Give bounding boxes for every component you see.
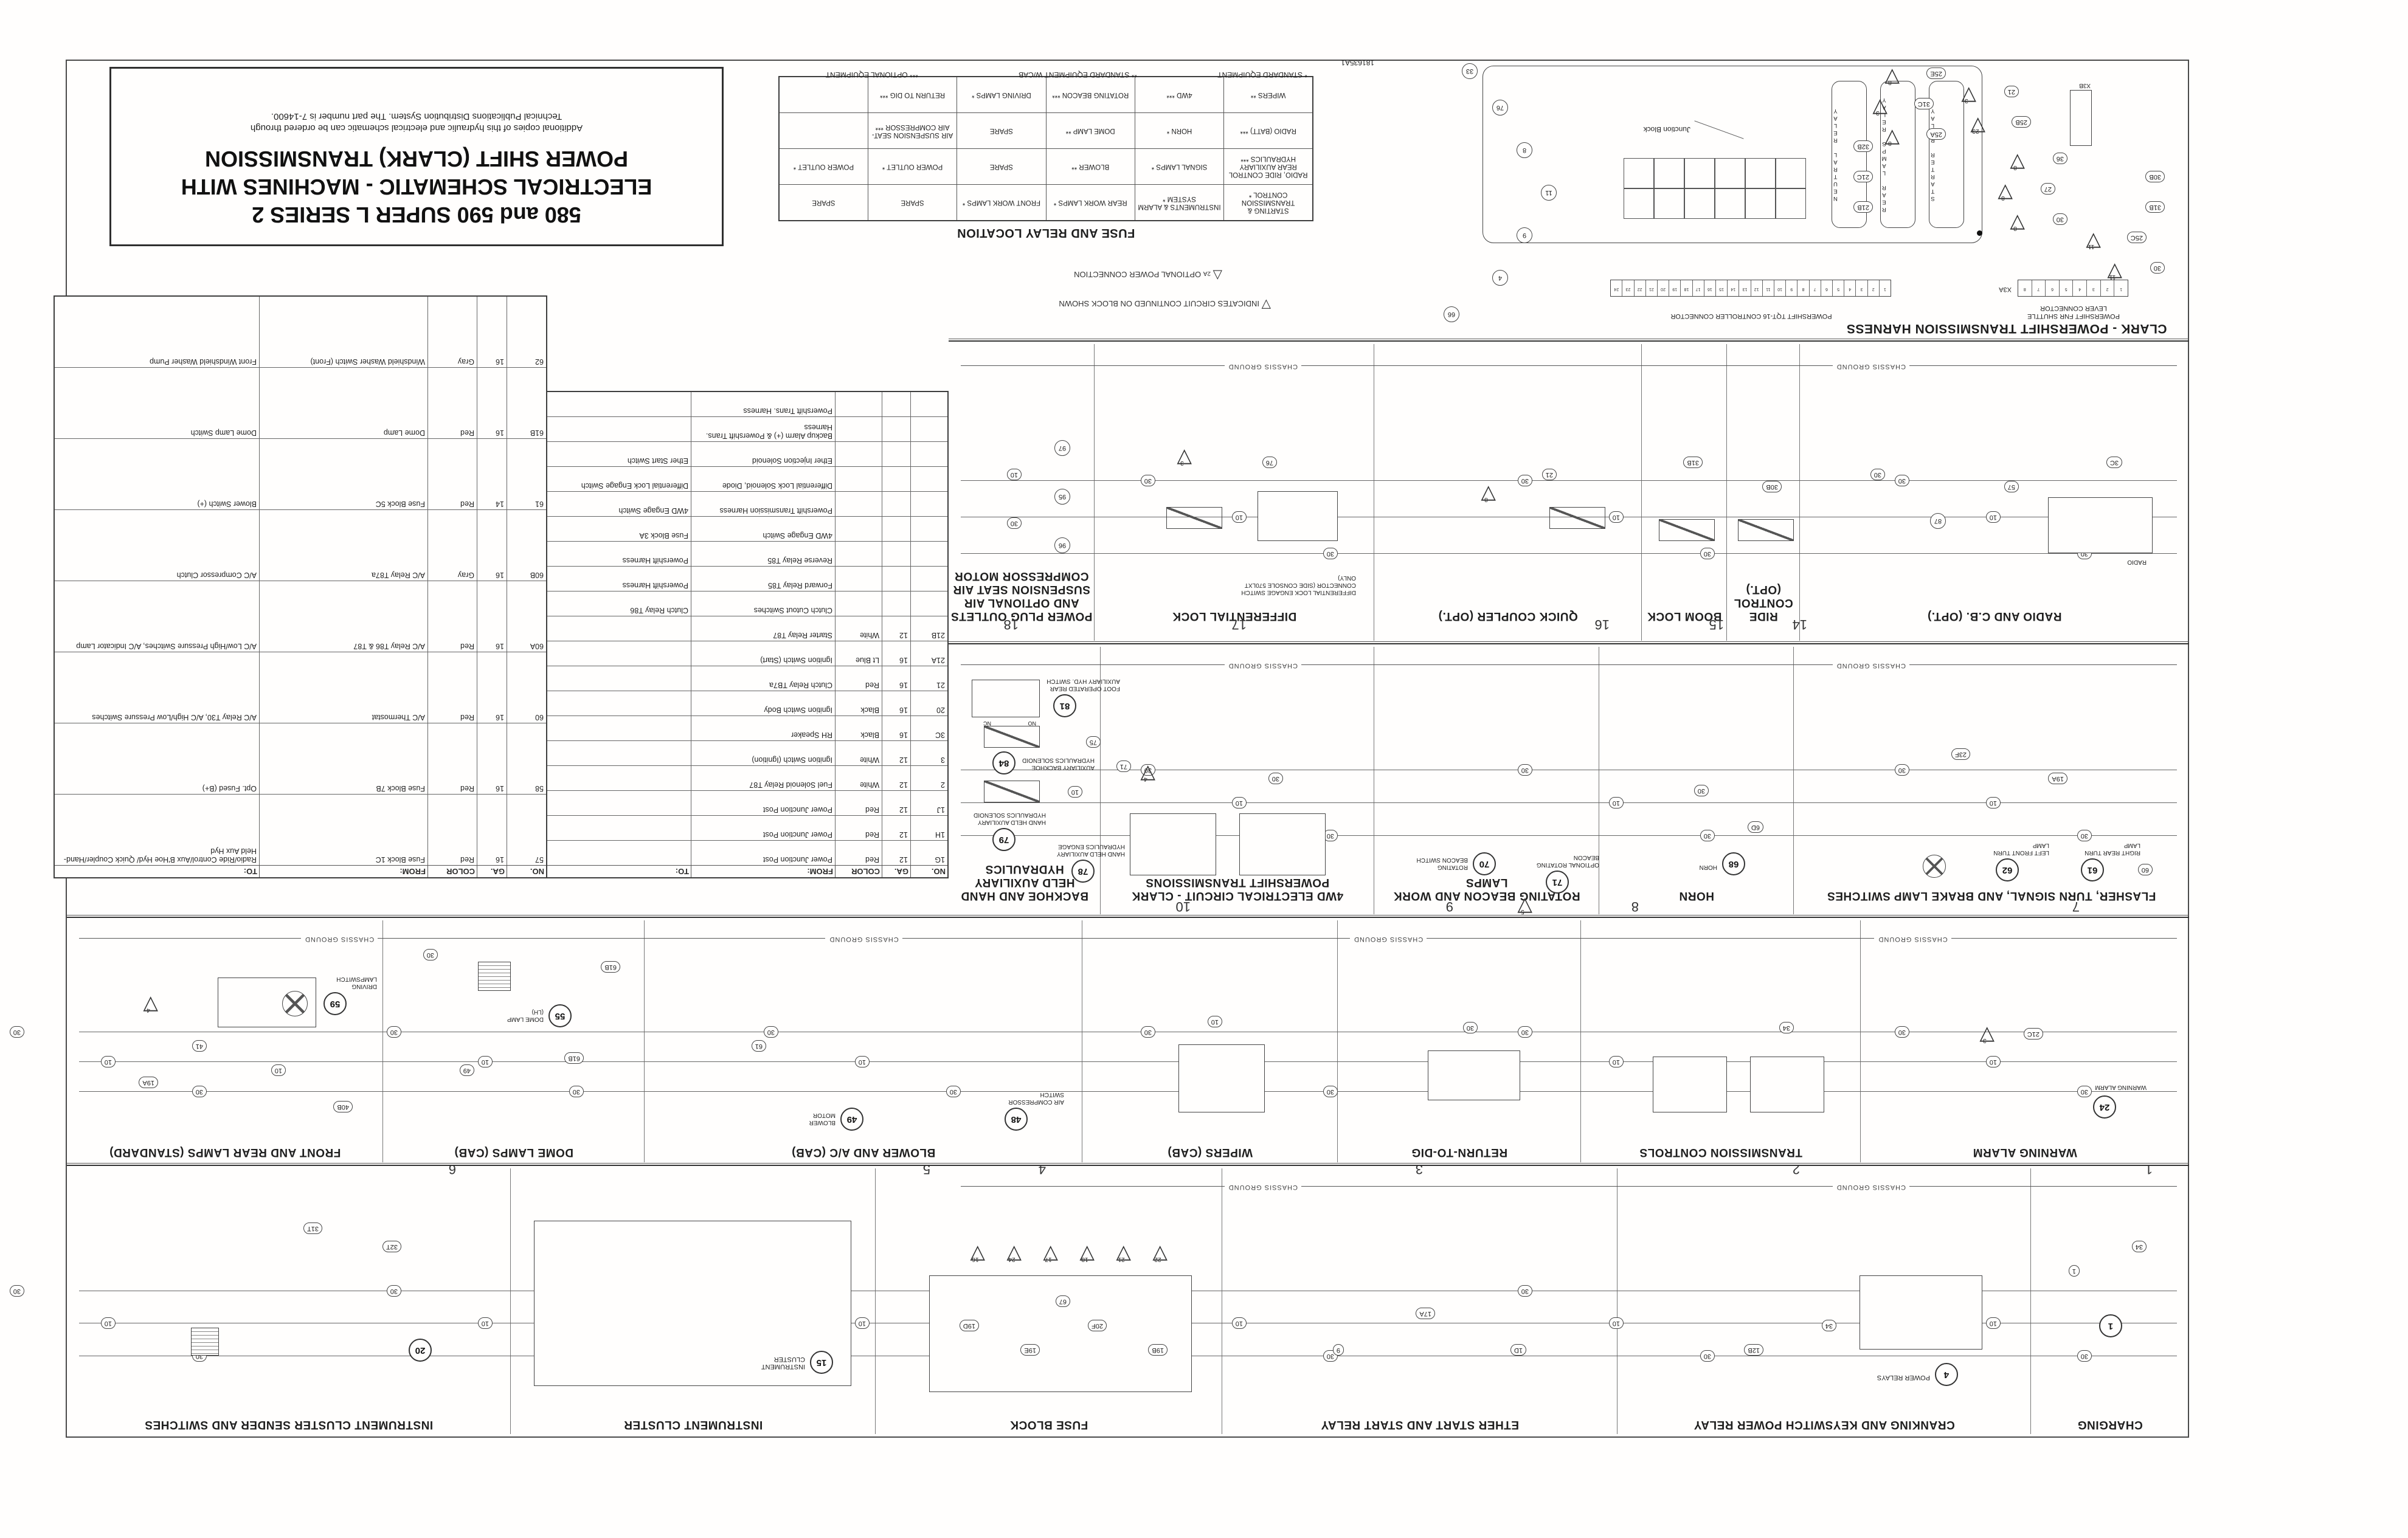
solenoid-coil <box>1738 519 1794 541</box>
wire-number: 30B <box>2145 171 2165 182</box>
schematic-sheet-rotated-180: CLARK - POWERSHIFT TRANSMISSION HARNESS … <box>0 0 2408 1538</box>
ground-triangle: ▽3 <box>1171 447 1192 468</box>
wire-number: 21B <box>1853 201 1873 213</box>
callout-number: 95 <box>1054 489 1070 505</box>
component-box <box>1750 1057 1824 1112</box>
ground-triangle-number: 8 <box>1476 496 1496 503</box>
wire-number: 30 <box>423 949 438 960</box>
component-label: FOOT OPERATED REAR AUXILIARY HYD. SWITCH <box>1041 677 1120 692</box>
ground-triangle-number: 18 <box>1075 1256 1095 1263</box>
component-box <box>972 680 1040 717</box>
component-box <box>1178 1044 1265 1112</box>
wire-number: 75 <box>1086 736 1101 748</box>
component-box <box>1653 1057 1727 1112</box>
schematic-elements: 13414POWER RELAYS3412B1D17A919B20F19E19D… <box>0 0 2408 1538</box>
ground-triangle-number: 3 <box>1975 1037 1995 1044</box>
ground-triangle-number: 22 <box>1148 1256 1168 1263</box>
component-box <box>1860 1275 1982 1350</box>
callout-number: 96 <box>1054 537 1070 553</box>
component-box <box>2048 497 2153 553</box>
wire-number: 34 <box>1779 1022 1794 1033</box>
wire-number: 10 <box>271 1064 286 1076</box>
junction-dot <box>1977 230 1982 236</box>
component-label: LEFT FRONT TURN LAMP <box>1982 841 2049 856</box>
callout-number: 66 <box>1444 306 1459 322</box>
scanned-schematic-page: CLARK - POWERSHIFT TRANSMISSION HARNESS … <box>0 0 2408 1538</box>
wire-number: 30 <box>1870 469 1885 480</box>
component-number: 24 <box>2093 1095 2116 1119</box>
lamp-symbol <box>282 991 308 1016</box>
ground-triangle: ▽4 <box>137 995 158 1015</box>
component-box <box>1130 813 1216 875</box>
wire-number: 67 <box>1056 1295 1070 1307</box>
wire-number: 19B <box>1148 1344 1168 1356</box>
component-number: 79 <box>992 828 1015 851</box>
lamp-symbol <box>1923 855 1946 878</box>
ground-triangle: ▽8 <box>1992 182 2013 203</box>
component-number: 71 <box>1546 871 1569 894</box>
wire-number: 32B <box>1853 140 1873 152</box>
component-number: 55 <box>548 1004 572 1027</box>
solenoid-coil <box>984 726 1040 748</box>
solenoid-coil <box>1549 507 1605 529</box>
component-label: HAND HELD AUXILIARY HYDRAULICS SOLENOID <box>973 811 1046 826</box>
component-label: HORN <box>1693 863 1717 871</box>
ground-triangle-number: 21 <box>1112 1256 1131 1263</box>
wire-number: 41 <box>192 1040 207 1052</box>
component-label: AIR COMPRESSOR SWITCH <box>991 1091 1064 1105</box>
callout-number: 8 <box>1517 142 1532 158</box>
wire-number: 1 <box>2069 1265 2080 1277</box>
ground-triangle-number: 3 <box>1868 109 1887 116</box>
wire-number: 36 <box>2053 153 2067 164</box>
wire-number: 10 <box>1208 1016 1222 1027</box>
wire-number: 71 <box>1116 760 1131 772</box>
component-number: 15 <box>810 1351 833 1374</box>
wire-number: 21C <box>2024 1028 2043 1040</box>
ground-triangle: ▽16 <box>964 1244 985 1264</box>
wire-number: 17A <box>1416 1308 1435 1319</box>
wire-number: 30 <box>2150 262 2165 274</box>
component-box <box>1239 813 1326 875</box>
wire-number: 27 <box>2041 183 2055 195</box>
wire-number: 34 <box>2132 1241 2147 1252</box>
component-label: OPTIONAL ROTATING BEACON <box>1532 853 1599 868</box>
solenoid-coil <box>1659 519 1715 541</box>
ground-triangle: ▽18 <box>1074 1244 1095 1264</box>
ground-triangle-number: 16 <box>966 1256 985 1263</box>
lamp-hatched-symbol <box>478 962 511 991</box>
ground-triangle: ▽23 <box>1965 116 1985 136</box>
component-number: 49 <box>840 1108 863 1131</box>
ground-triangle-number: 4 <box>139 1007 158 1013</box>
component-label: WARNING ALARM <box>2092 1083 2147 1091</box>
component-number: 61 <box>2081 858 2104 881</box>
ground-triangle-number: 5 <box>1513 908 1532 915</box>
wire-number: 34 <box>1822 1320 1836 1331</box>
wire-number: 25C <box>2127 232 2147 243</box>
component-label: INSTRUMENT CLUSTER <box>738 1356 805 1370</box>
callout-number: 76 <box>1492 100 1508 116</box>
wire-number: 9 <box>1333 1344 1344 1356</box>
ground-triangle-number: 23 <box>1966 128 1985 134</box>
component-number: 59 <box>323 992 347 1015</box>
callout-number: 4 <box>1492 270 1508 286</box>
component-number: 62 <box>1996 858 2019 881</box>
wire-number: 10 <box>1068 786 1082 798</box>
component-label: RIGHT REAR TURN LAMP <box>2074 841 2140 856</box>
callout-number: 97 <box>1054 440 1070 456</box>
wire-number: 30 <box>1268 773 1283 784</box>
component-label: BLOWER MOTOR <box>787 1111 836 1126</box>
ground-triangle: ▽8 <box>2004 152 2025 173</box>
wire-number: 57 <box>2004 481 2019 492</box>
component-box <box>1258 491 1338 541</box>
ground-triangle: ▽5 <box>1512 896 1532 917</box>
ground-triangle-number: 24 <box>1002 1256 1022 1263</box>
component-box <box>929 1275 1192 1392</box>
ground-triangle: ▽8 <box>1475 484 1496 505</box>
component-number: 78 <box>1071 860 1095 883</box>
wire-number: 76 <box>1262 457 1277 468</box>
wire-number: 31C <box>1914 98 1934 109</box>
wire-number: 40B <box>333 1101 353 1112</box>
callout-number: 11 <box>1541 185 1557 201</box>
ground-triangle: ▽24 <box>1001 1244 1022 1264</box>
wire-number: 12B <box>1744 1344 1763 1356</box>
component-box <box>1428 1050 1520 1100</box>
component-label: AUXILIARY BACKHOE HYDRAULICS SOLENOID <box>1022 756 1095 771</box>
wire-number: 19D <box>960 1320 979 1331</box>
component-number: 20 <box>409 1339 432 1362</box>
wire-number: 19E <box>1020 1344 1040 1356</box>
connector-tag: X3B <box>2066 81 2091 89</box>
wire-number: 3C <box>2106 457 2122 468</box>
wire-number: 20F <box>1088 1320 1107 1331</box>
callout-number: 9 <box>1517 227 1532 243</box>
wire-number: 25A <box>1926 128 1946 140</box>
component-label: HAND HELD AUXILIARY HYDRAULICS ENGAGE <box>1052 843 1125 857</box>
wire-number: 19A <box>139 1077 158 1088</box>
wire-number: 30 <box>1007 517 1022 529</box>
component-number: 70 <box>1473 852 1496 875</box>
ground-triangle-number: 8 <box>2005 164 2025 171</box>
callout-number: 33 <box>1462 63 1478 79</box>
component-label: RADIO <box>2055 558 2147 565</box>
ground-triangle: ▽17 <box>1037 1244 1058 1264</box>
ground-triangle: ▽8 <box>1879 67 1900 88</box>
ground-triangle: ▽3 <box>1867 97 1887 118</box>
wire-number: 19A <box>2048 773 2067 784</box>
ground-triangle: ▽8 <box>1879 128 1900 148</box>
ground-triangle: ▽21 <box>1110 1244 1131 1264</box>
wire-number: 10 <box>1007 469 1022 480</box>
ground-triangle: ▽8 <box>2004 213 2025 233</box>
harness-connector <box>2070 90 2092 146</box>
callout-number: 87 <box>1930 513 1946 529</box>
wire-number: 31T <box>303 1222 322 1234</box>
ground-triangle: ▽22 <box>1147 1244 1168 1264</box>
component-label: DIFFERENTIAL LOCK ENGAGE SWITCH CONNECTO… <box>1234 574 1356 596</box>
ground-triangle: ▽3 <box>1974 1025 1995 1046</box>
ground-triangle-number: 4 <box>1136 776 1155 782</box>
component-number: 81 <box>1053 694 1076 717</box>
wire-number: 21 <box>2004 86 2019 97</box>
component-number: 1 <box>2099 1314 2122 1337</box>
wire-number: 6D <box>1748 821 1763 833</box>
wire-number: 23F <box>1951 748 1970 760</box>
ground-triangle-number: 8 <box>1993 195 2013 201</box>
component-number: 68 <box>1722 852 1745 875</box>
wire-number: 31B <box>1683 457 1703 468</box>
ground-triangle-number: 8 <box>2005 225 2025 232</box>
ground-triangle-number: 11 <box>2081 243 2101 250</box>
ground-triangle-number: 3 <box>1172 460 1192 466</box>
component-label: DOME LAMP (LH) <box>495 1008 544 1022</box>
ground-triangle-number: 3 <box>1957 97 1976 104</box>
wire-number: 30B <box>1762 481 1782 492</box>
wire-number: 25E <box>1926 67 1946 79</box>
component-number: 48 <box>1005 1108 1028 1131</box>
ground-triangle-number: 11 <box>2103 274 2122 280</box>
wire-number: 21C <box>1853 171 1873 182</box>
wire-number: 61B <box>601 961 620 973</box>
component-label: DRIVING LAMPSWITCH <box>310 975 377 990</box>
ground-triangle-number: 8 <box>1880 79 1900 86</box>
wire-number: 30 <box>1694 785 1709 796</box>
component-label: POWER RELAYS <box>1839 1374 1930 1381</box>
wire-number: 61B <box>564 1052 584 1064</box>
solenoid-coil <box>984 781 1040 802</box>
ground-triangle: ▽11 <box>2102 261 2122 282</box>
wire-number: 25B <box>2012 116 2031 128</box>
wire-number: 32T <box>382 1241 401 1252</box>
ground-triangle-number: 8 <box>1880 140 1900 147</box>
component-number: 4 <box>1935 1363 1958 1386</box>
wire-number: 21 <box>1542 469 1557 480</box>
lamp-hatched-symbol <box>191 1328 219 1356</box>
wire-number: 30 <box>2053 213 2067 225</box>
ground-triangle: ▽11 <box>2080 231 2101 252</box>
solenoid-coil <box>1166 507 1222 529</box>
ground-triangle: ▽4 <box>1135 764 1155 784</box>
wire-number: 60 <box>2138 864 2153 875</box>
wire-number: 1D <box>1510 1344 1526 1356</box>
wire-number: 31B <box>2145 201 2165 213</box>
component-number: 84 <box>992 751 1015 774</box>
component-label: ROTATING BEACON SWITCH <box>1413 856 1468 871</box>
ground-triangle-number: 17 <box>1039 1256 1058 1263</box>
ground-triangle: ▽3 <box>1956 85 1976 106</box>
wire-number: 61 <box>752 1040 766 1052</box>
wire-number: 49 <box>460 1064 474 1076</box>
wire-number: 30 <box>1463 1022 1478 1033</box>
component-label: NC <box>900 720 991 727</box>
